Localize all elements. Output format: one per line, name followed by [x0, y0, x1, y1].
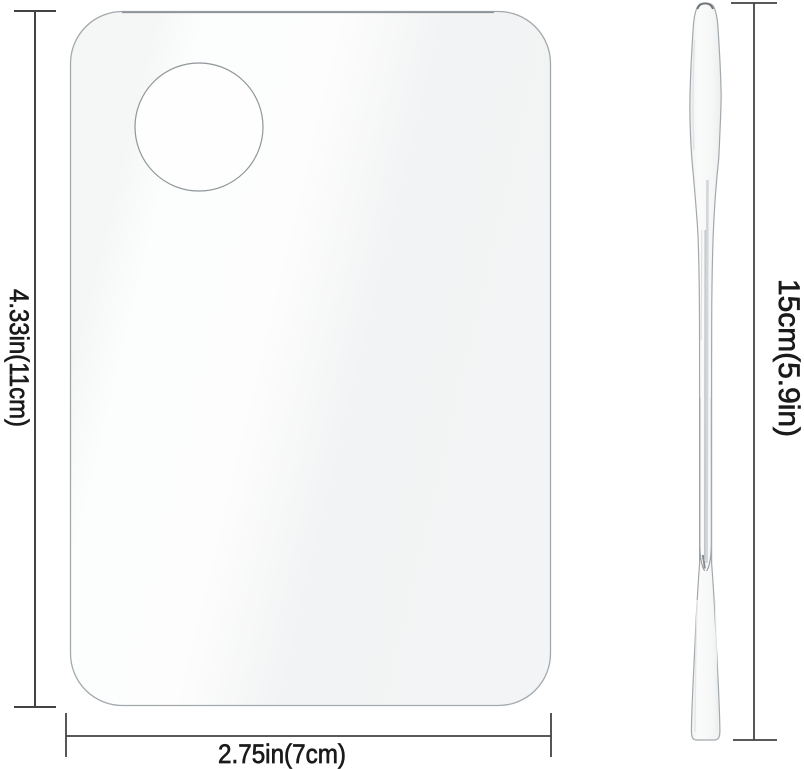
svg-text:15cm(5.9in): 15cm(5.9in): [772, 279, 804, 437]
svg-text:2.75in(7cm): 2.75in(7cm): [218, 739, 346, 769]
svg-text:4.33in(11cm): 4.33in(11cm): [4, 289, 34, 427]
